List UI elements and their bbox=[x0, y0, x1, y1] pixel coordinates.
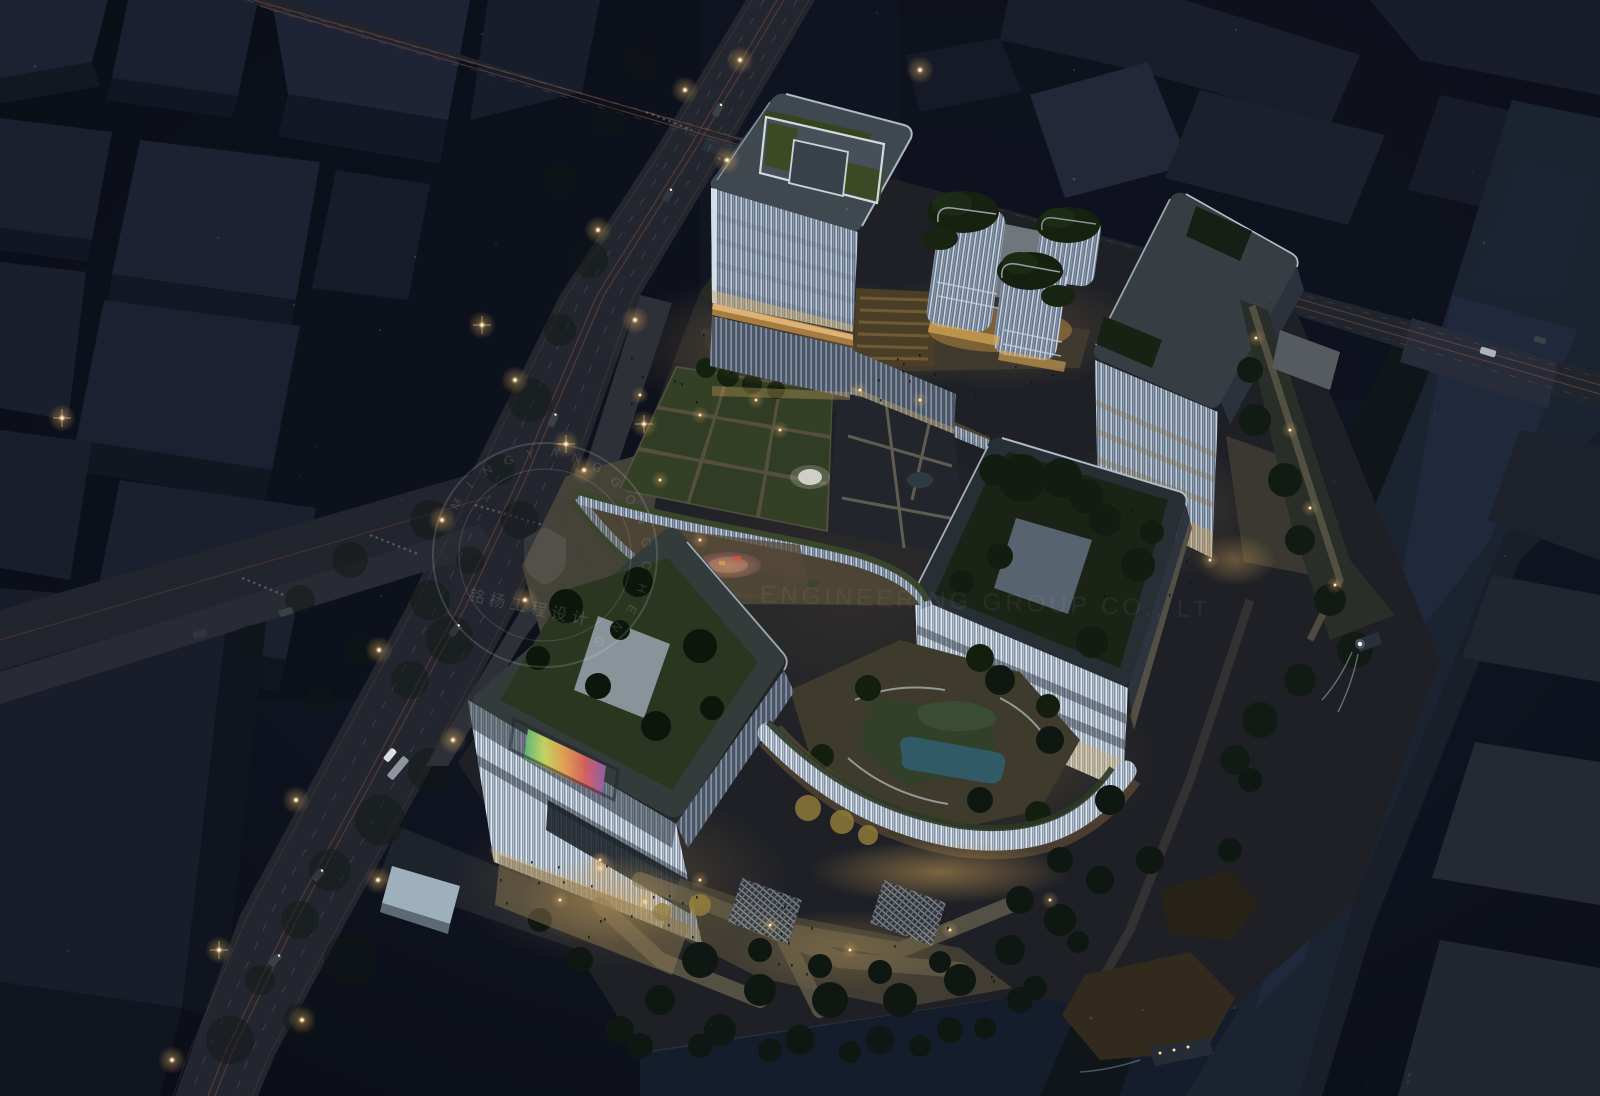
svg-text:C: C bbox=[639, 560, 654, 570]
svg-text:G: G bbox=[638, 537, 653, 548]
